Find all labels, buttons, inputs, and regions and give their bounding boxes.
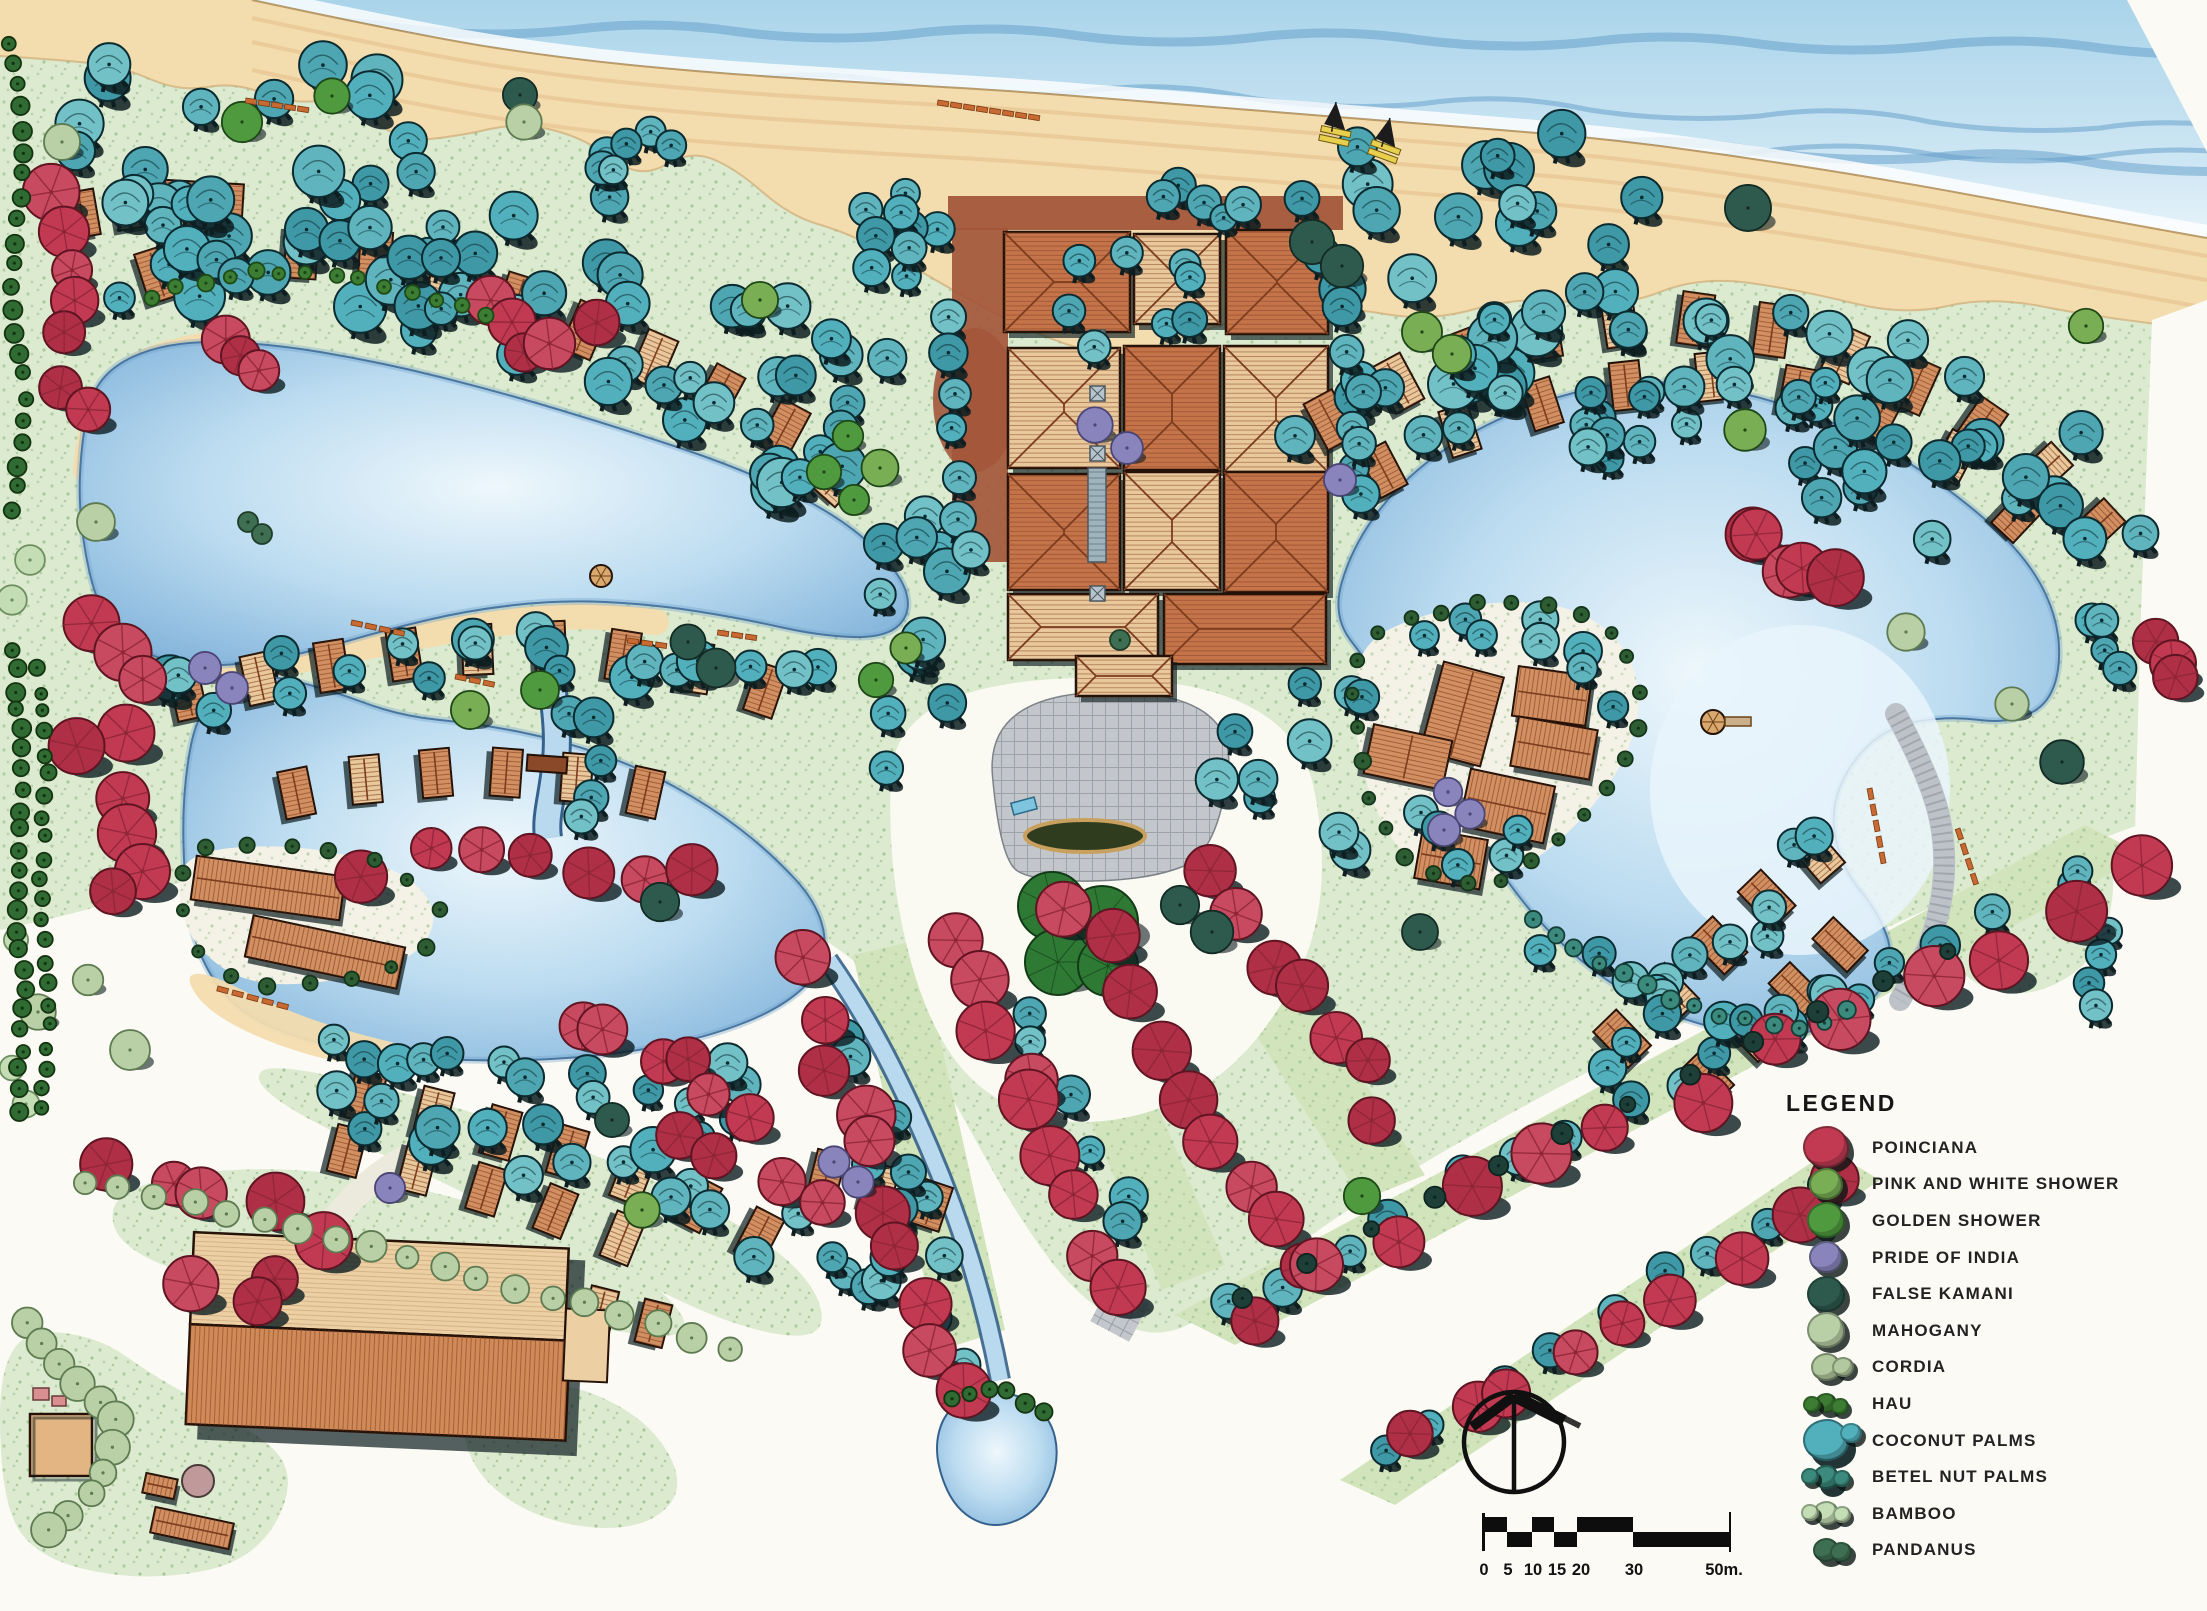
legend-item-label: HAU — [1872, 1395, 1912, 1412]
scale-label: 15 — [1548, 1561, 1566, 1579]
legend-item-golden-shower: GOLDEN SHOWER — [1780, 1202, 2207, 1239]
cordia-tree-icon — [1811, 1353, 1841, 1381]
legend-item-pink-and-white-shower: PINK AND WHITE SHOWER — [1780, 1166, 2207, 1203]
false-kamani-tree-icon — [1807, 1276, 1845, 1312]
legend-item-coconut-palms: COCONUT PALMS — [1780, 1422, 2207, 1459]
legend-panel: LEGEND POINCIANA PINK AND WHITE SHOWER G… — [1780, 1092, 2207, 1568]
legend-item-label: FALSE KAMANI — [1872, 1285, 2014, 1302]
scale-label: 10 — [1524, 1561, 1542, 1579]
scale-label: 30 — [1625, 1561, 1643, 1579]
legend-item-label: GOLDEN SHOWER — [1872, 1212, 2042, 1229]
bamboo-clump-icon — [1813, 1501, 1839, 1525]
betel-nut-palm-tree-icon — [1813, 1465, 1839, 1489]
legend-item-betel-nut-palms: BETEL NUT PALMS — [1780, 1458, 2207, 1495]
pandanus-tree-icon — [1813, 1538, 1839, 1562]
resort-master-plan: 0 5 10 15 20 30 50m. LEGEND POINCIANA PI… — [0, 0, 2207, 1611]
legend-item-label: CORDIA — [1872, 1358, 1946, 1375]
legend-item-label: PINK AND WHITE SHOWER — [1872, 1175, 2119, 1192]
legend-item-label: PANDANUS — [1872, 1541, 1977, 1558]
legend-item-label: PRIDE OF INDIA — [1872, 1249, 2020, 1266]
scale-label: 5 — [1503, 1561, 1512, 1579]
scale-label: 50m. — [1705, 1561, 1743, 1579]
mahogany-tree-icon — [1807, 1312, 1845, 1348]
legend-title: LEGEND — [1786, 1092, 2207, 1115]
legend-item-pandanus: PANDANUS — [1780, 1532, 2207, 1569]
legend-item-pride-of-india: PRIDE OF INDIA — [1780, 1239, 2207, 1276]
legend-item-label: MAHOGANY — [1872, 1322, 1983, 1339]
legend-item-hau: HAU — [1780, 1385, 2207, 1422]
scale-label: 0 — [1479, 1561, 1488, 1579]
legend-item-poinciana: POINCIANA — [1780, 1129, 2207, 1166]
legend-item-false-kamani: FALSE KAMANI — [1780, 1275, 2207, 1312]
scale-label: 20 — [1572, 1561, 1590, 1579]
legend-item-bamboo: BAMBOO — [1780, 1495, 2207, 1532]
golden-shower-tree-icon — [1807, 1202, 1845, 1238]
pink-and-white-shower-tree-icon — [1809, 1168, 1843, 1200]
legend-item-label: POINCIANA — [1872, 1139, 1978, 1156]
hau-shrub-icon — [1815, 1393, 1837, 1413]
legend-item-label: BAMBOO — [1872, 1505, 1957, 1522]
pride-of-india-tree-icon — [1809, 1241, 1843, 1273]
legend-item-cordia: CORDIA — [1780, 1349, 2207, 1386]
legend-item-mahogany: MAHOGANY — [1780, 1312, 2207, 1349]
poinciana-tree-icon — [1803, 1126, 1849, 1168]
legend-item-label: COCONUT PALMS — [1872, 1432, 2037, 1449]
legend-item-label: BETEL NUT PALMS — [1872, 1468, 2048, 1485]
coconut-palm-tree-icon — [1803, 1419, 1849, 1461]
